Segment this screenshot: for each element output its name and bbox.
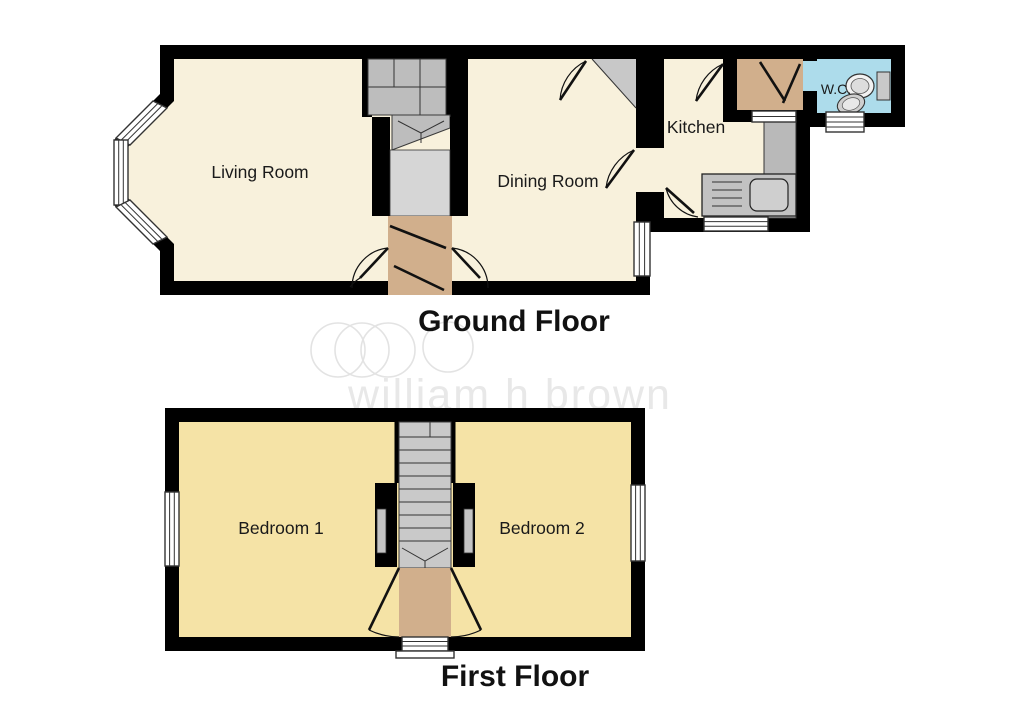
- kitchen-lobby-wall: [723, 59, 737, 122]
- floorplan-drawing: william h brown: [0, 0, 1024, 717]
- hall-wall-left: [372, 117, 390, 216]
- label-bedroom-2: Bedroom 2: [499, 518, 585, 538]
- bedroom1-window: [165, 492, 179, 566]
- stair-wall-right: [444, 59, 468, 117]
- label-kitchen: Kitchen: [667, 117, 725, 137]
- kitchen-sink-unit: [702, 174, 796, 216]
- ground-floor-plan: Living Room Dining Room Kitchen W.C. Gro…: [114, 45, 905, 338]
- stairwell-recess-right: [464, 509, 473, 553]
- sink-basin: [750, 179, 788, 211]
- label-wc: W.C.: [821, 81, 851, 97]
- ground-floor-title: Ground Floor: [418, 305, 610, 338]
- label-bedroom-1: Bedroom 1: [238, 518, 324, 538]
- first-floor-title: First Floor: [441, 660, 590, 693]
- stairs-first: [397, 422, 453, 570]
- label-living-room: Living Room: [211, 162, 308, 182]
- lobby-window: [752, 111, 796, 122]
- first-floor-plan: Bedroom 1 Bedroom 2 First Floor: [165, 408, 645, 693]
- landing-window: [396, 637, 454, 658]
- stairwell-recess-left: [377, 509, 386, 553]
- entrance-lobby-floor: [737, 59, 803, 110]
- floorplan-page: william h brown: [0, 0, 1024, 717]
- dining-window: [634, 222, 650, 276]
- hall-floor: [390, 150, 450, 216]
- kitchen-window: [704, 217, 768, 231]
- bedroom2-window: [631, 485, 645, 561]
- wc-window-steps: [826, 112, 864, 132]
- hall-wall-right: [450, 117, 468, 216]
- landing-floor: [399, 568, 451, 637]
- label-dining-room: Dining Room: [497, 171, 598, 191]
